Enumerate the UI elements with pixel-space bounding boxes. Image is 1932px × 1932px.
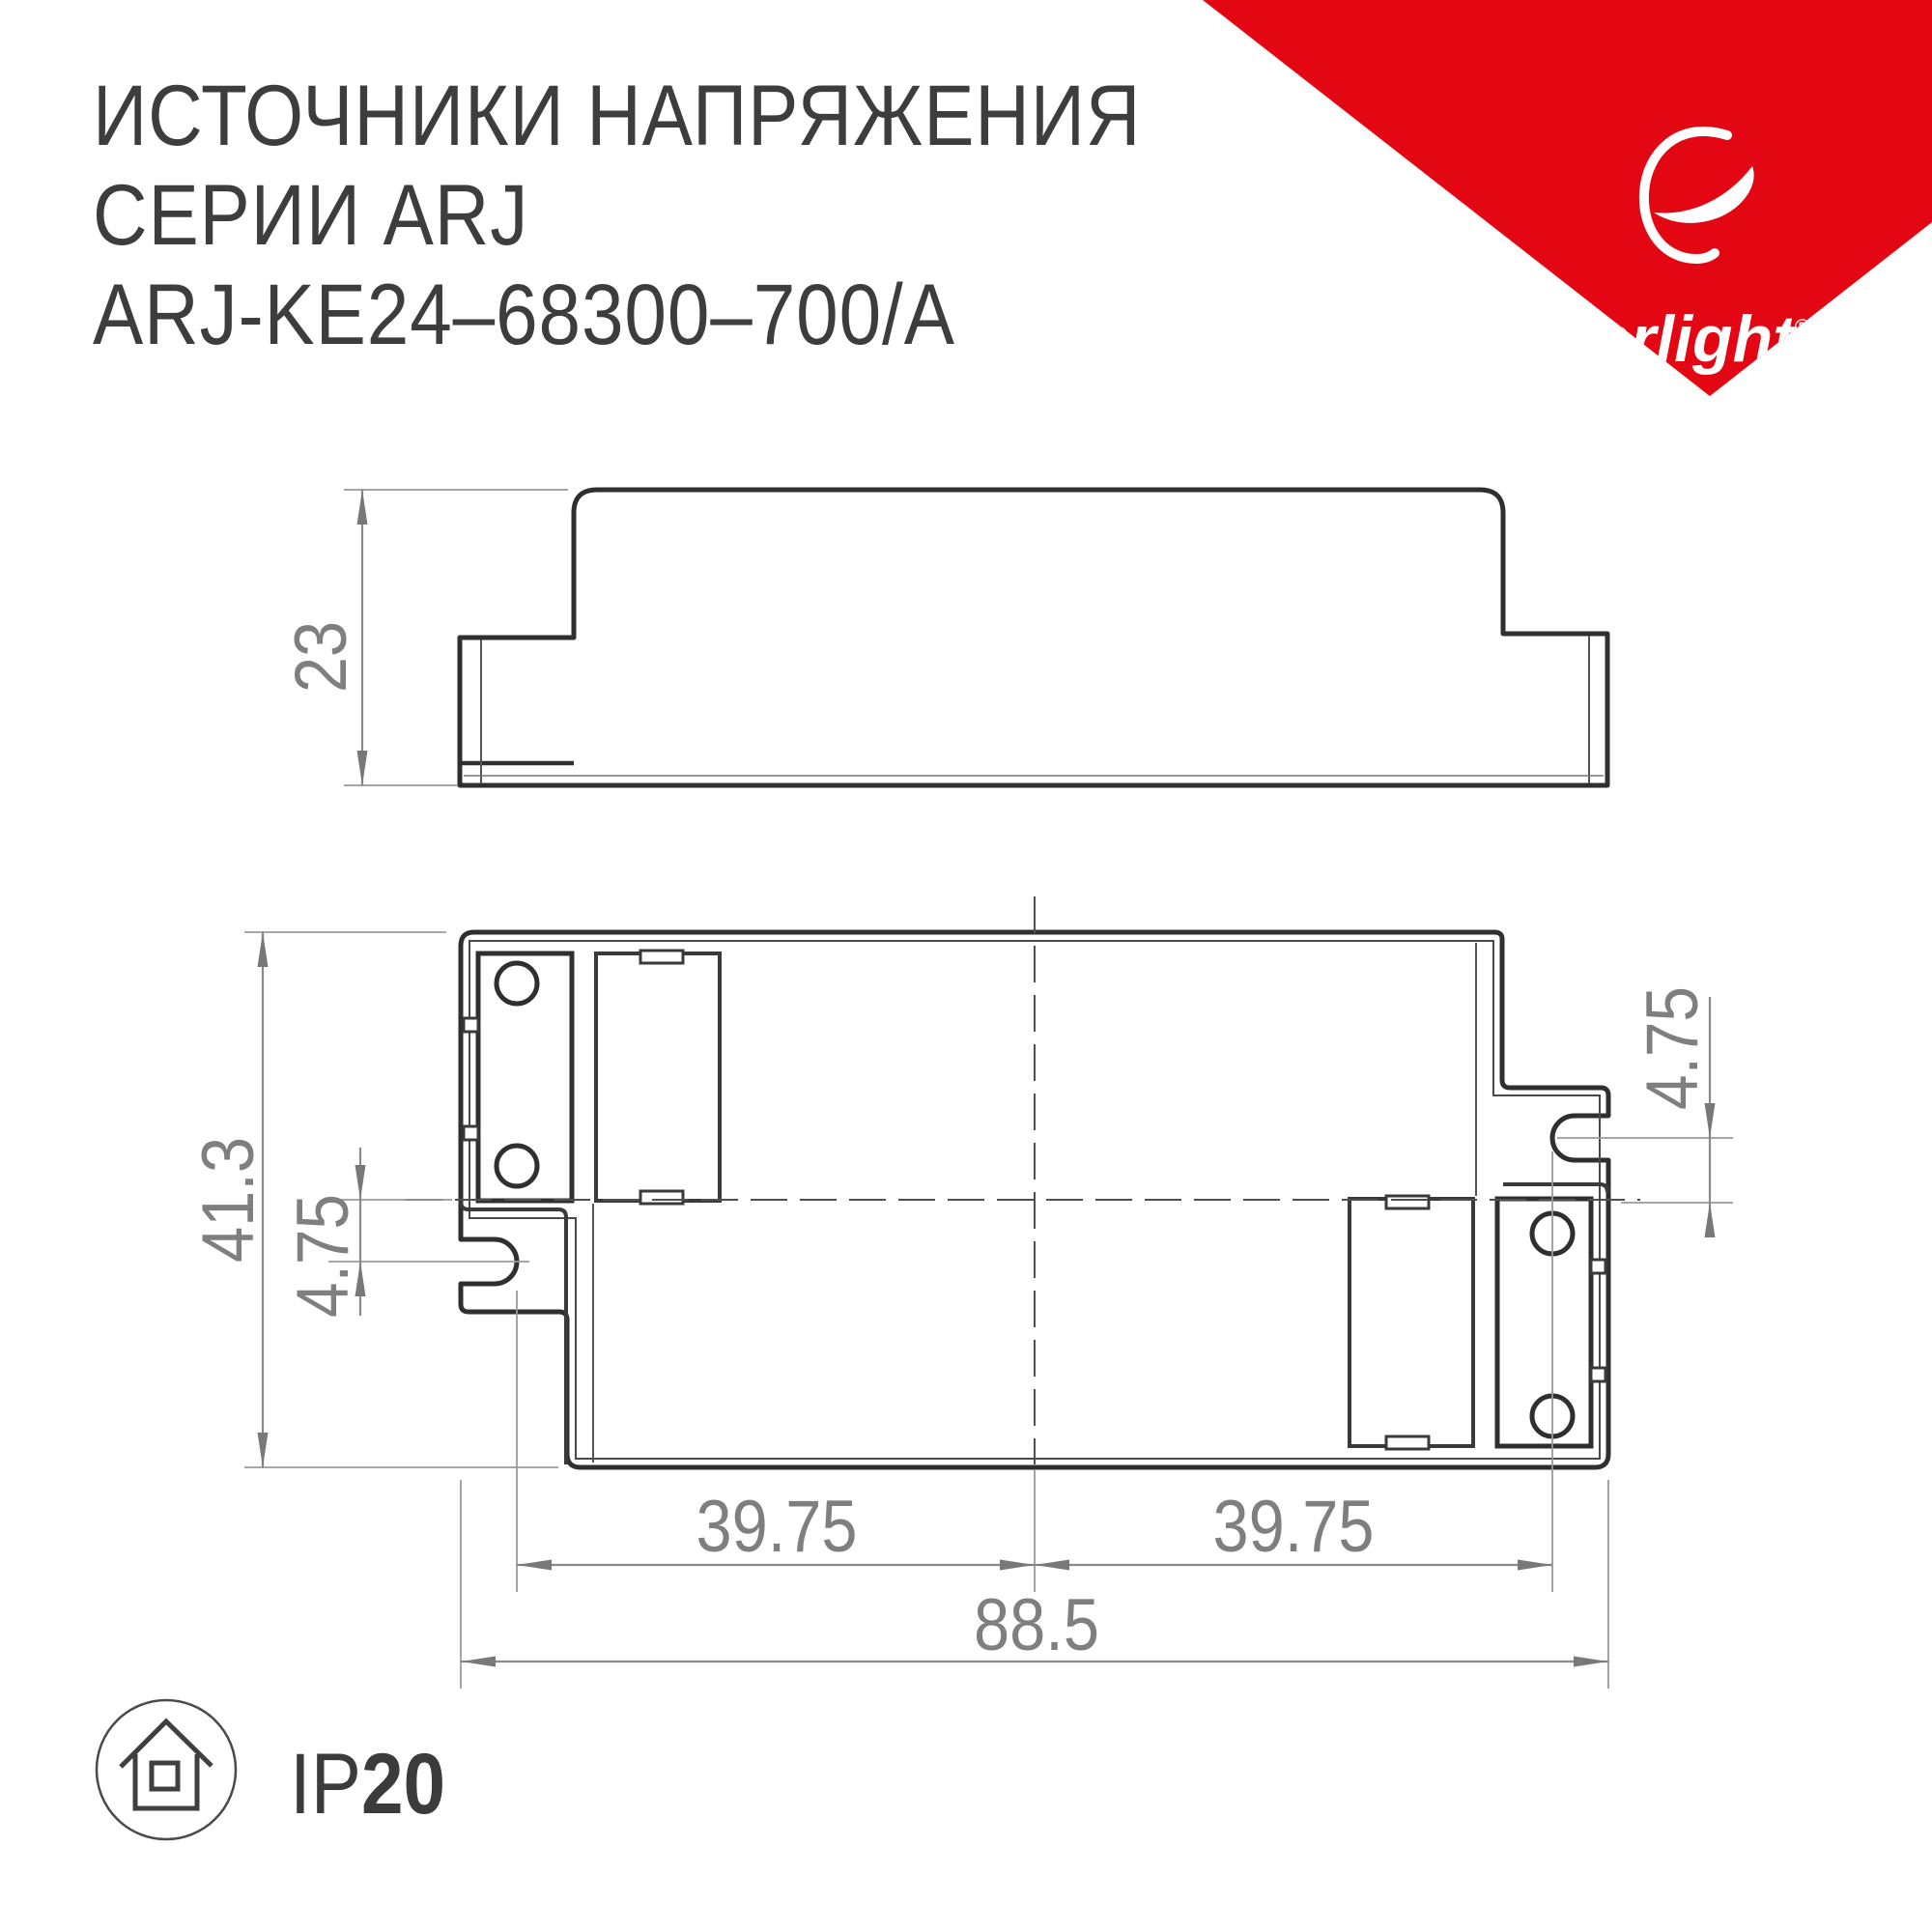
dim-label-height: 23 <box>280 621 362 693</box>
dim-label-slot-right: 4.75 <box>1632 986 1714 1110</box>
house-icon <box>121 1721 212 1808</box>
ip-rating-text: IP20 <box>290 1734 445 1833</box>
component-top-left <box>596 953 720 1201</box>
terminal-block-br-notch-1 <box>1591 1260 1605 1273</box>
component-tl-notch-top <box>640 951 683 963</box>
dim-label-slot-left: 4.75 <box>282 1194 364 1318</box>
dim-label-span-left: 39.75 <box>696 1486 858 1568</box>
screw-hole-tl-1 <box>497 963 537 1004</box>
ip-rating-value: 20 <box>361 1735 445 1832</box>
component-br-notch-bottom <box>1386 1436 1429 1449</box>
dim-label-total-length: 88.5 <box>974 1584 1099 1666</box>
ip-rating-icon <box>97 1700 236 1839</box>
component-br-notch-top <box>1386 1196 1429 1208</box>
dim-label-depth: 41.3 <box>187 1137 270 1263</box>
dim-label-span-right: 39.75 <box>1213 1486 1375 1568</box>
terminal-block-tl-notch-2 <box>464 1126 478 1140</box>
component-bottom-right <box>1350 1199 1473 1446</box>
terminal-block-br-notch-2 <box>1591 1368 1605 1381</box>
side-view <box>460 490 1607 785</box>
component-tl-notch-bottom <box>640 1191 683 1204</box>
ip-rating-prefix: IP <box>290 1735 361 1832</box>
house-window <box>152 1763 178 1789</box>
page: ИСТОЧНИКИ НАПРЯЖЕНИЯ СЕРИИ ARJ ARJ-KE24–… <box>0 0 1932 1932</box>
side-view-outline <box>460 490 1607 785</box>
terminal-block-tl-notch-1 <box>464 1018 478 1032</box>
screw-hole-tl-2 <box>497 1146 537 1186</box>
plan-view <box>406 896 1640 1467</box>
technical-drawing: 23 41.3 4.75 4.75 39.75 39.75 88.5 <box>0 0 1932 1932</box>
